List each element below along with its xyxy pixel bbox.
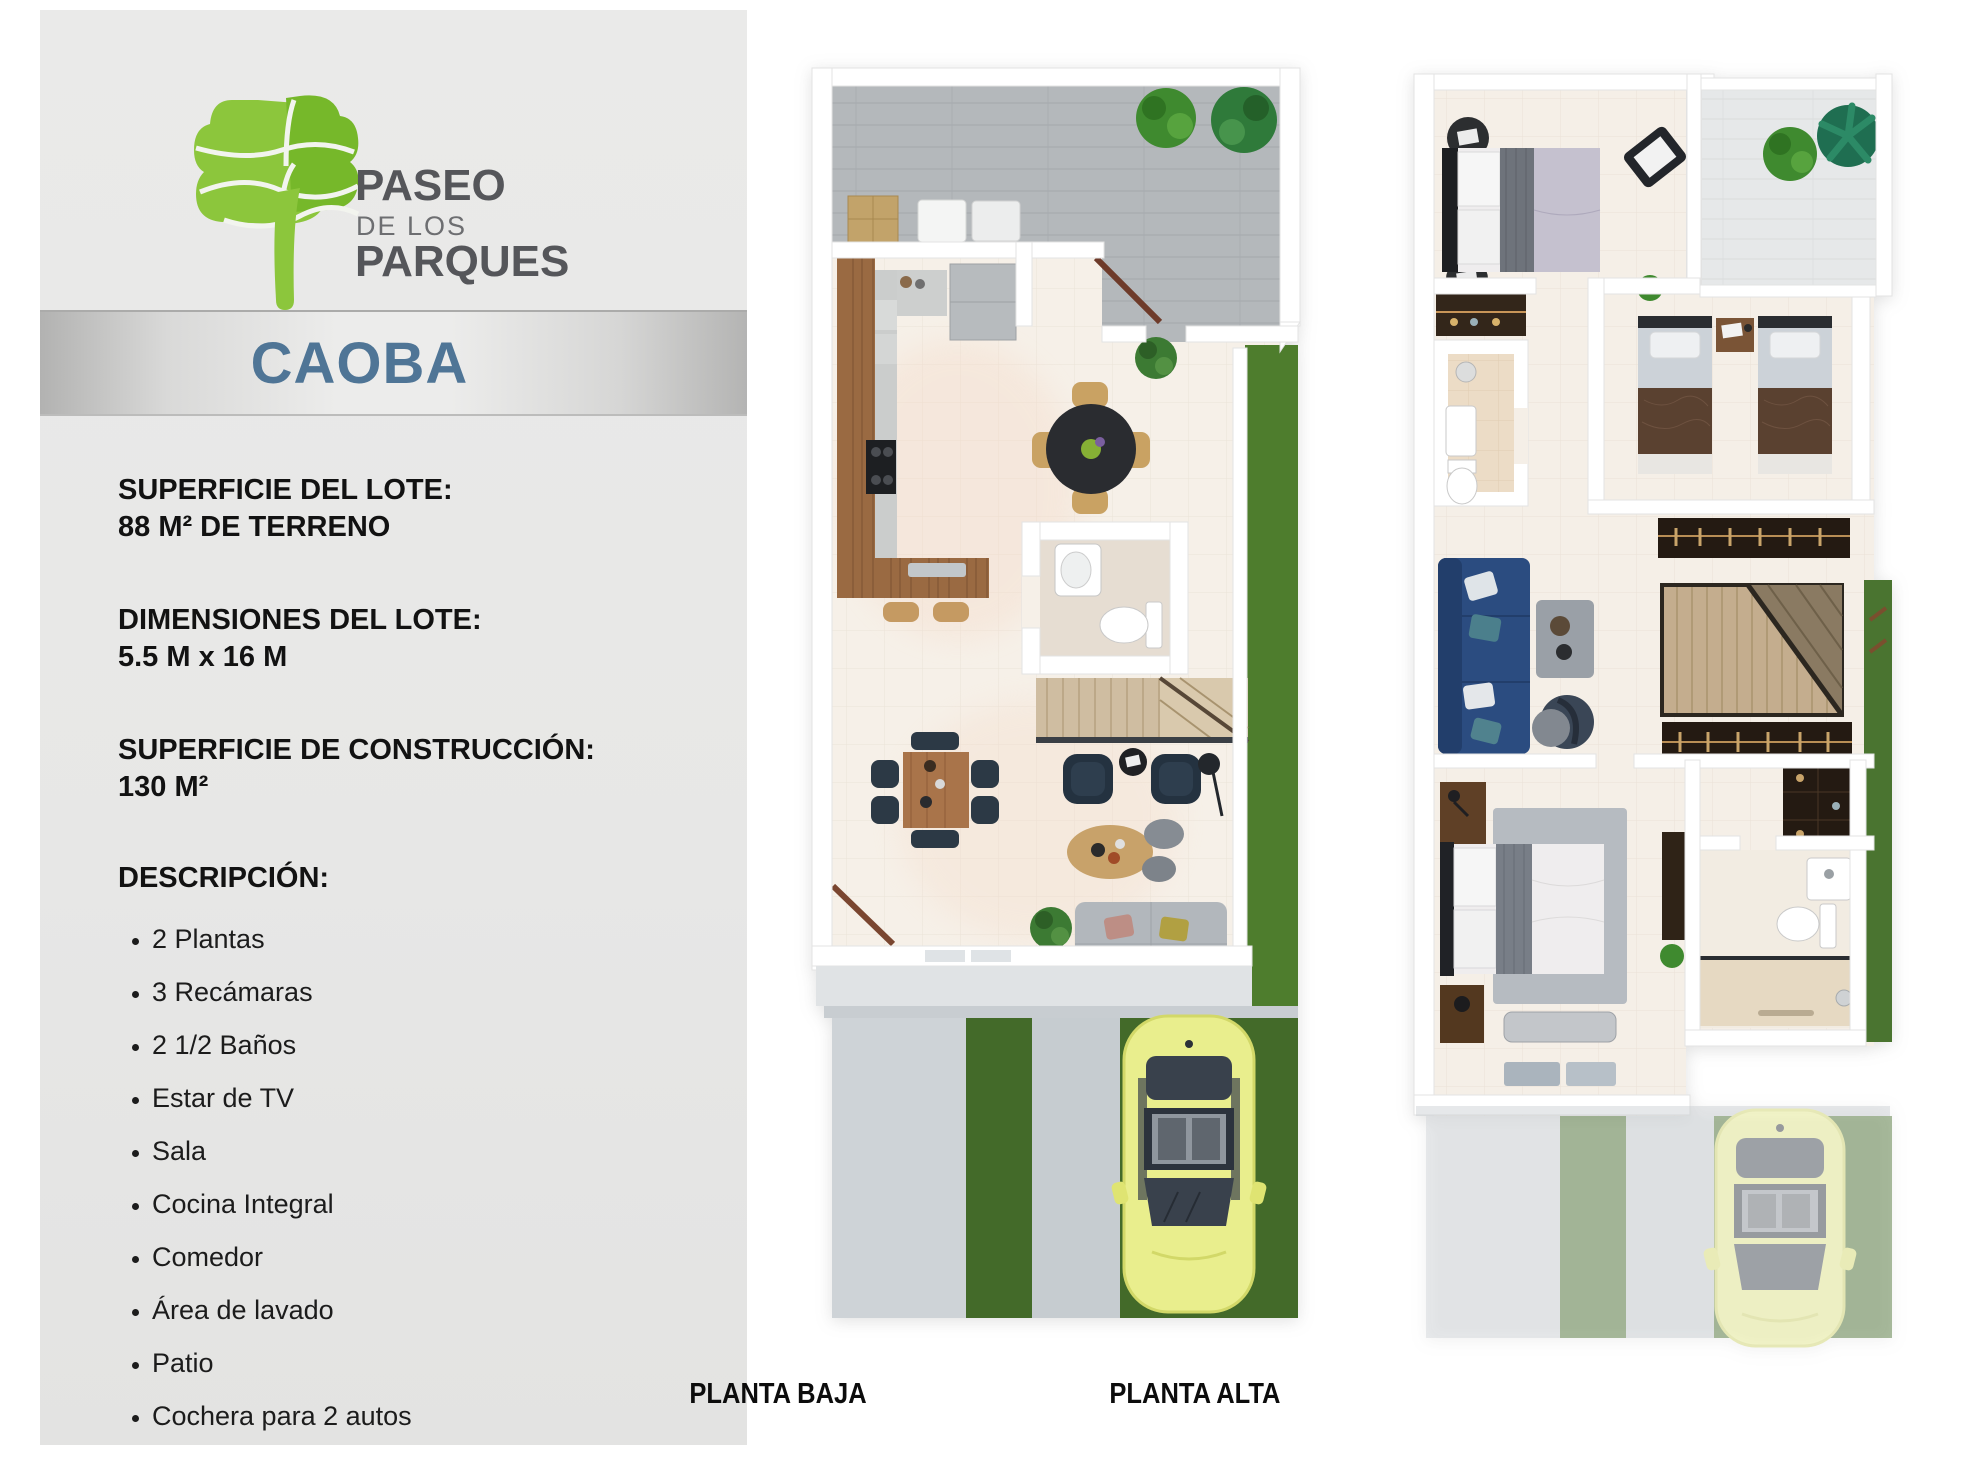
car-ghost (1703, 1110, 1858, 1346)
cabinet (875, 334, 897, 364)
headboard (1442, 148, 1458, 272)
spec-label: SUPERFICIE DE CONSTRUCCIÓN: (118, 732, 718, 769)
driveway (816, 966, 1298, 1318)
spec-lot-surface: SUPERFICIE DEL LOTE: 88 M² DE TERRENO (118, 472, 718, 546)
mirror (1456, 362, 1476, 382)
concrete-pad (832, 1018, 966, 1318)
stool (933, 602, 969, 622)
toilet (1777, 907, 1819, 941)
twin-bed (1758, 316, 1832, 474)
driveway-ghost (1416, 1106, 1892, 1346)
dining-table (903, 752, 969, 828)
door-gap (1514, 408, 1528, 464)
cabinet (875, 300, 897, 330)
car (1111, 1016, 1268, 1312)
stairs (1036, 678, 1248, 743)
planta-baja-label: PLANTA BAJA (689, 1378, 856, 1411)
stove (866, 440, 896, 494)
half-bath (1022, 522, 1188, 674)
spec-section: SUPERFICIE DEL LOTE: 88 M² DE TERRENO DI… (118, 472, 718, 1443)
logo-word-parques: PARQUES (355, 237, 569, 286)
list-item: 2 Plantas (152, 913, 718, 966)
mini-table (1556, 644, 1572, 660)
toilet (1447, 468, 1477, 504)
floor-mat (1566, 1062, 1616, 1086)
feature-list: 2 Plantas 3 Recámaras 2 1/2 Baños Estar … (118, 913, 718, 1443)
toilet-tank (1820, 904, 1836, 948)
list-item: Cocina Integral (152, 1178, 718, 1231)
list-item: 2 1/2 Baños (152, 1019, 718, 1072)
porch (816, 966, 1252, 1006)
side-garden-grass (1245, 345, 1298, 1007)
plant (1211, 87, 1277, 153)
window (925, 950, 965, 962)
spec-value: 130 M² (118, 769, 718, 806)
floor-mat (1504, 1062, 1560, 1086)
planta-baja-floorplan (808, 60, 1310, 1340)
chair (871, 760, 899, 788)
floor-lamp (1198, 753, 1220, 775)
coffee-table (1067, 825, 1153, 879)
chair (911, 732, 959, 750)
spec-construction-surface: SUPERFICIE DE CONSTRUCCIÓN: 130 M² (118, 732, 718, 806)
window (971, 950, 1011, 962)
antenna (1185, 1040, 1193, 1048)
spec-label: DIMENSIONES DEL LOTE: (118, 602, 718, 639)
chair (971, 796, 999, 824)
nightstand (1440, 985, 1484, 1043)
toilet (1100, 607, 1148, 643)
plant (1660, 944, 1684, 968)
stool (883, 602, 919, 622)
ball-pouf (1532, 709, 1570, 747)
wardrobe (1436, 294, 1526, 336)
pouf (1144, 819, 1184, 849)
plant (1135, 337, 1177, 379)
mini-table (1550, 616, 1570, 636)
model-banner: CAOBA (40, 310, 747, 416)
planta-alta-floorplan (1408, 60, 1904, 1350)
spec-lot-dimensions: DIMENSIONES DEL LOTE: 5.5 M x 16 M (118, 602, 718, 676)
bathroom-2 (1700, 850, 1858, 1028)
rear-window (1146, 1056, 1232, 1100)
sidebar-panel: PASEO DE LOS PARQUES CAOBA SUPERFICIE DE… (40, 10, 747, 1445)
shower (1700, 960, 1858, 1026)
desk (1440, 782, 1486, 846)
description-title: DESCRIPCIÓN: (118, 862, 718, 895)
pillow (1159, 916, 1190, 942)
list-item: 3 Recámaras (152, 966, 718, 1019)
list-item: Sala (152, 1125, 718, 1178)
paseo-parques-logo: PASEO DE LOS PARQUES (190, 70, 590, 320)
shower-glass (1700, 956, 1858, 960)
wood-cabinets (837, 248, 875, 598)
pouf (1142, 856, 1176, 882)
list-item: Cochera para 2 autos (152, 1390, 718, 1443)
logo-wordmark: PASEO DE LOS PARQUES (355, 161, 569, 286)
list-item: Patio (152, 1337, 718, 1390)
twin-bed (1638, 316, 1712, 474)
bench (1504, 1012, 1616, 1042)
pillow (1468, 614, 1502, 643)
chair (871, 796, 899, 824)
windshield (1144, 1178, 1234, 1226)
list-item: Estar de TV (152, 1072, 718, 1125)
bathroom-1 (1434, 340, 1528, 506)
pillow (1462, 682, 1495, 710)
kitchen-sink (908, 563, 966, 577)
side-grass (1864, 580, 1892, 1042)
rug (1536, 600, 1594, 678)
chair (971, 760, 999, 788)
description-section: DESCRIPCIÓN: 2 Plantas 3 Recámaras 2 1/2… (118, 862, 718, 1443)
tv-unit (1662, 832, 1686, 940)
list-item: Área de lavado (152, 1284, 718, 1337)
dryer (972, 201, 1020, 241)
list-item: Comedor (152, 1231, 718, 1284)
stairs (1662, 585, 1842, 715)
brochure-page: PASEO DE LOS PARQUES CAOBA SUPERFICIE DE… (0, 0, 1980, 1476)
concrete-strip (1032, 1018, 1120, 1318)
logo-word-paseo: PASEO (355, 161, 506, 210)
spec-value: 88 M² DE TERRENO (118, 509, 718, 546)
vanity (1446, 406, 1476, 456)
chair (911, 830, 959, 848)
spec-value: 5.5 M x 16 M (118, 639, 718, 676)
door-gap (1022, 576, 1040, 628)
tree-icon (194, 95, 358, 310)
model-name: CAOBA (251, 330, 469, 397)
bed-throw (1500, 148, 1534, 272)
duvet (1534, 148, 1600, 272)
planta-alta-label: PLANTA ALTA (1109, 1378, 1276, 1411)
headboard (1440, 842, 1454, 976)
spec-label: SUPERFICIE DEL LOTE: (118, 472, 718, 509)
washer (918, 200, 966, 242)
